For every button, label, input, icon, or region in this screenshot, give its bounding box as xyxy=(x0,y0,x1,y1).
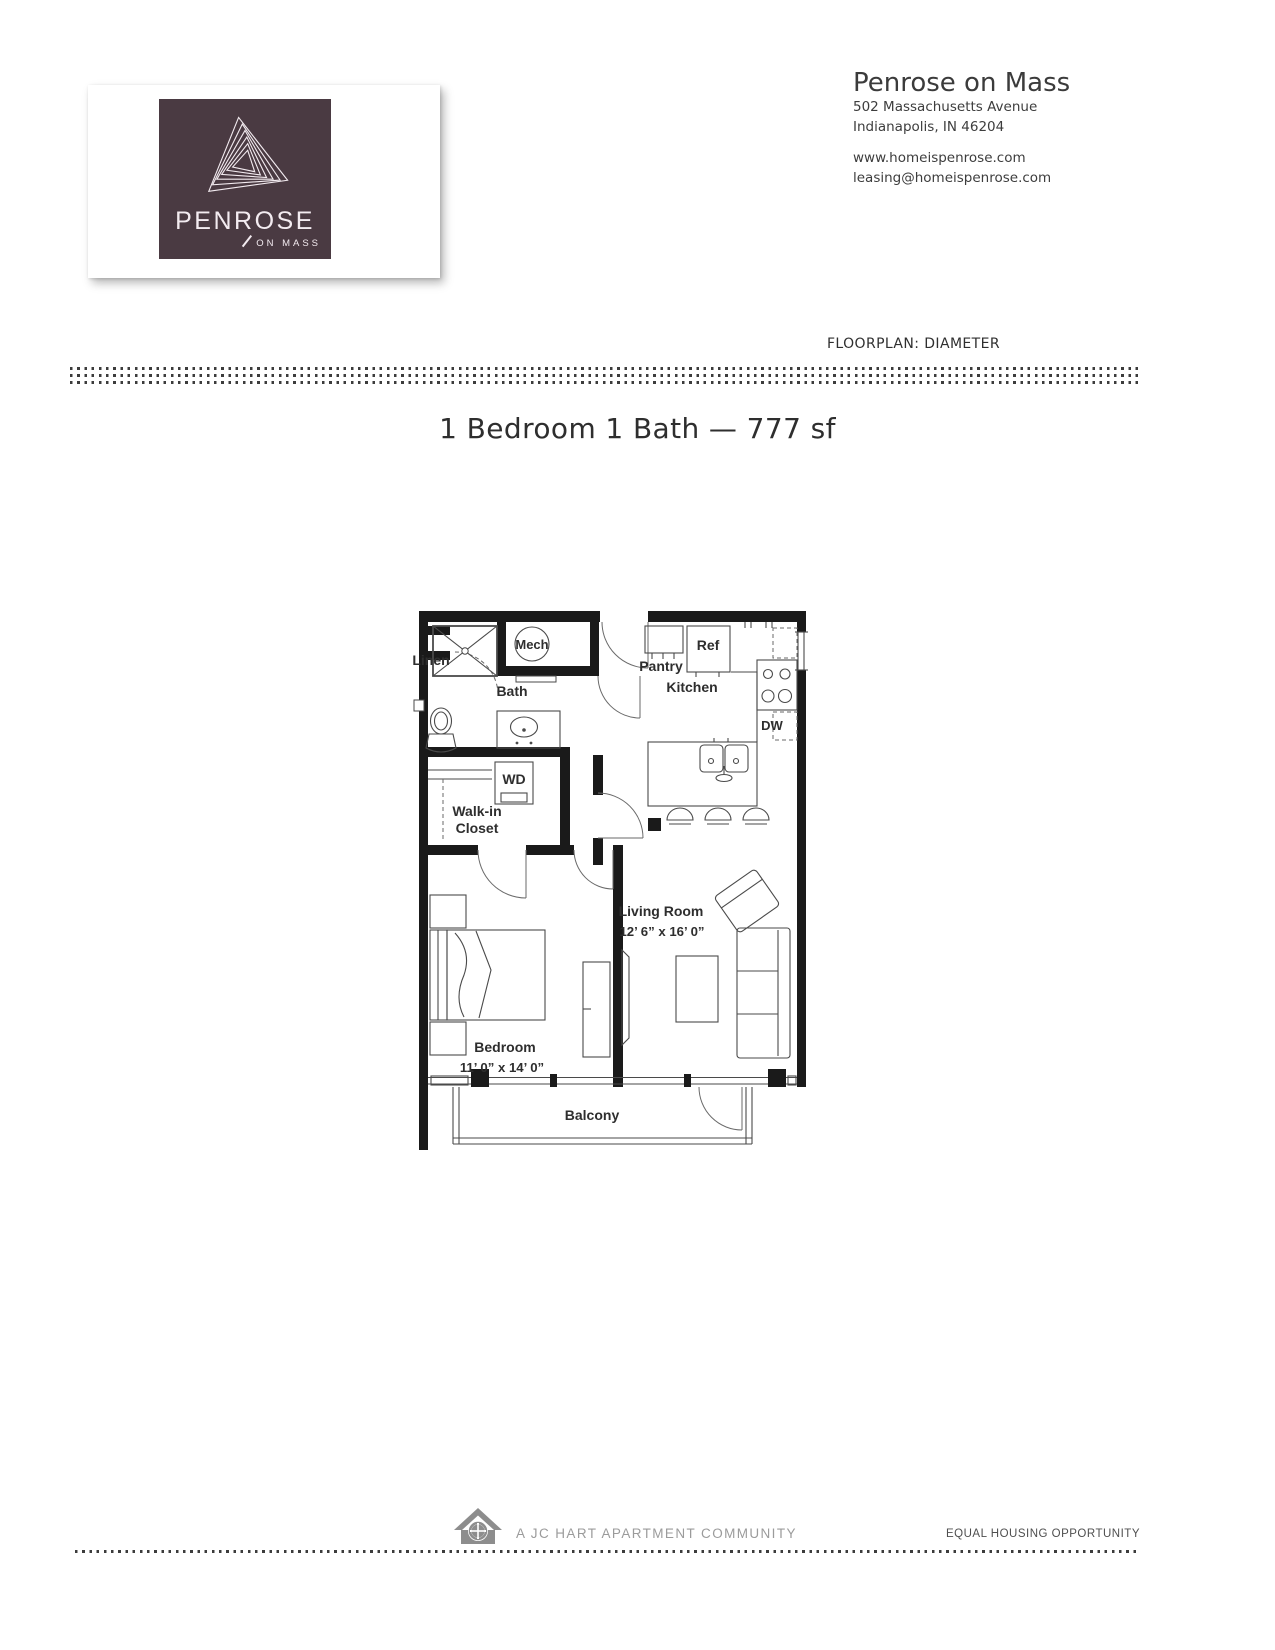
bath-door xyxy=(598,676,640,718)
label-pantry: Pantry xyxy=(639,658,683,674)
email-text: leasing@homeispenrose.com xyxy=(853,170,1051,186)
logo-wordmark-sub: ON MASS xyxy=(256,238,321,249)
cased-opening xyxy=(516,676,556,682)
address-line1: 502 Massachusetts Avenue xyxy=(853,99,1037,115)
dotted-separator xyxy=(70,374,1143,377)
wall-closet-bottom-1 xyxy=(419,845,478,855)
label-bedroom-dims: 11’ 0” x 14’ 0” xyxy=(460,1060,544,1075)
bed-icon xyxy=(430,895,545,1055)
community-text: A JC HART APARTMENT COMMUNITY xyxy=(516,1526,797,1541)
vanity-sink-icon xyxy=(497,711,560,748)
label-bath: Bath xyxy=(496,683,527,699)
sofa-icon xyxy=(737,928,790,1058)
window-mullion xyxy=(550,1074,557,1087)
label-bedroom: Bedroom xyxy=(474,1039,535,1055)
label-living-dims: 12’ 6” x 16’ 0” xyxy=(619,924,704,939)
dotted-separator xyxy=(75,1550,1140,1553)
label-kitchen: Kitchen xyxy=(666,679,717,695)
label-living-room: Living Room xyxy=(619,903,704,919)
island-sink-icon xyxy=(700,745,748,782)
range-stove-icon xyxy=(757,660,797,710)
label-walkin-closet: Closet xyxy=(456,820,499,836)
label-linen: Linen xyxy=(412,652,449,668)
label-walkin-closet: Walk-in xyxy=(452,803,501,819)
wall-hall-lower xyxy=(593,838,603,865)
flyer-page: { "brand": { "logo_wordmark": "PENROSE",… xyxy=(0,0,1275,1650)
logo-card: PENROSE ON MASS xyxy=(88,85,440,278)
wall-shower-right xyxy=(497,622,506,676)
wall-right xyxy=(797,611,806,1087)
wall-closet-bottom-2 xyxy=(526,845,574,855)
balcony-door xyxy=(699,1087,742,1130)
label-balcony: Balcony xyxy=(565,1107,620,1123)
structural-column xyxy=(648,818,661,831)
label-dw: DW xyxy=(761,718,783,733)
equal-housing-text: EQUAL HOUSING OPPORTUNITY xyxy=(840,1528,1140,1540)
label-mech: Mech xyxy=(515,637,548,652)
logo-wordmark: PENROSE xyxy=(175,209,315,234)
logo-slash-icon xyxy=(242,235,252,247)
column-post xyxy=(768,1069,786,1087)
hall-living-door xyxy=(598,793,643,838)
property-title: Penrose on Mass xyxy=(853,68,1070,98)
coffee-table-icon xyxy=(676,956,718,1022)
counter-edge xyxy=(731,672,757,742)
wall-hall-upper xyxy=(593,755,603,795)
page-title: 1 Bedroom 1 Bath — 777 sf xyxy=(0,412,1275,445)
dresser-icon xyxy=(583,962,610,1057)
wall-mech-bottom xyxy=(506,666,599,676)
bar-stools xyxy=(667,808,769,824)
dotted-separator xyxy=(70,381,1143,384)
nightstand-icon xyxy=(430,895,466,928)
wall-top-right xyxy=(648,611,806,622)
bedroom-door-1 xyxy=(478,850,526,898)
wall-left xyxy=(419,611,428,1150)
wall-top-left xyxy=(419,611,600,622)
floorplan-name-label: FLOORPLAN: DIAMETER xyxy=(0,336,1000,352)
tv-icon xyxy=(622,950,629,1045)
armchair-icon xyxy=(714,869,780,934)
address-line2: Indianapolis, IN 46204 xyxy=(853,119,1004,135)
linen-door xyxy=(455,652,498,695)
jchart-house-icon xyxy=(452,1506,504,1546)
dotted-separator xyxy=(70,367,1143,370)
penrose-triangle-icon xyxy=(185,105,305,209)
window-mullion xyxy=(684,1074,691,1087)
label-wd: WD xyxy=(502,771,525,787)
label-ref: Ref xyxy=(697,637,720,653)
floorplan-drawing: Mech Linen Bath Pantry Ref Kitchen DW WD… xyxy=(400,600,830,1160)
nightstand-icon xyxy=(430,1022,466,1055)
brand-logo: PENROSE ON MASS xyxy=(159,99,331,259)
pantry-shelf-icon xyxy=(645,626,683,659)
website-text: www.homeispenrose.com xyxy=(853,150,1026,166)
wall-closet-right xyxy=(560,757,570,845)
